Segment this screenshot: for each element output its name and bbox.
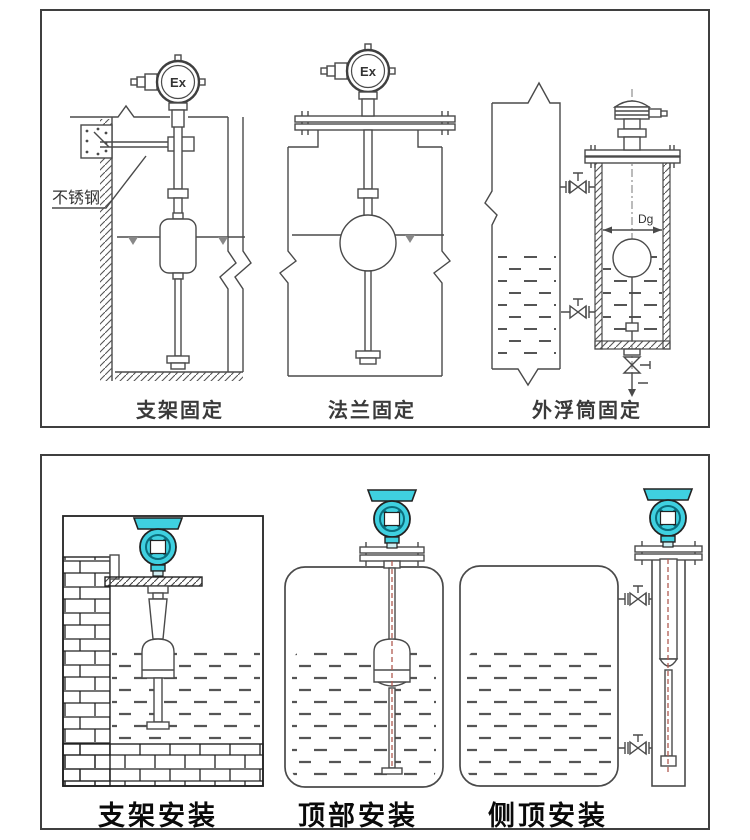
diagram-flange-fixing: Ex	[280, 44, 455, 376]
mounting-flange	[295, 111, 455, 135]
upper-valve-icon	[560, 173, 595, 193]
level-marker-icon	[405, 235, 415, 243]
float	[142, 639, 174, 678]
upper-valve-icon	[618, 586, 652, 605]
stainless-steel-label: 不锈钢	[52, 189, 100, 207]
lower-valve-icon	[561, 299, 595, 318]
brick-wall	[63, 557, 110, 786]
drain-valve-icon	[624, 349, 650, 397]
ex-transmitter-head-icon: Ex	[321, 44, 395, 116]
teal-transmitter-head-icon	[368, 490, 416, 548]
ex-marking-label: Ex	[170, 75, 187, 90]
pipe-coupling	[168, 189, 188, 198]
rod-end-stop	[167, 356, 189, 363]
rod-end-stop	[147, 722, 169, 729]
caption-external-chamber-fixing: 外浮筒固定	[512, 394, 662, 423]
caption-top-installation: 顶部安装	[280, 794, 436, 833]
caption-side-top-installation: 侧顶安装	[470, 794, 626, 833]
transmitter-head-icon	[615, 101, 667, 150]
cable-gland-icon	[649, 109, 661, 117]
pipe-coupling	[358, 189, 378, 198]
guide-pipe	[174, 124, 182, 189]
floor-hatch	[115, 372, 243, 381]
tank-liquid	[112, 646, 260, 744]
sphere-float	[340, 215, 396, 271]
stainless-steel-callout: 不锈钢	[52, 156, 146, 208]
guide-pipe	[364, 130, 372, 189]
installation-methods-panel: 支架安装 顶部安装 侧顶安装	[40, 454, 710, 830]
float	[160, 219, 196, 273]
pipe-coupling	[148, 586, 168, 593]
ex-transmitter-head-icon: Ex	[131, 55, 205, 127]
tank-liquid	[498, 251, 556, 361]
installation-methods-drawing	[42, 456, 708, 828]
teal-transmitter-head-icon	[644, 489, 692, 547]
diagram-top-installation	[285, 490, 443, 787]
sphere-float	[613, 239, 651, 277]
fixing-methods-panel: Ex 不锈钢	[40, 9, 710, 428]
caption-bracket-fixing: 支架固定	[110, 394, 250, 423]
caption-flange-fixing: 法兰固定	[302, 394, 442, 423]
tank-liquid	[467, 650, 611, 780]
diagram-external-chamber-fixing: Dg	[485, 83, 680, 397]
level-marker-icon	[128, 237, 138, 245]
fixing-methods-drawing: Ex 不锈钢	[42, 11, 708, 426]
rod-end-stop	[356, 351, 380, 358]
ex-marking-label: Ex	[360, 64, 377, 79]
wall-angle-bracket	[110, 555, 119, 579]
lower-valve-icon	[618, 735, 652, 754]
bracket-shelf	[105, 577, 202, 586]
diagram-side-top-installation	[460, 489, 702, 786]
level-marker-icon	[218, 237, 228, 245]
guide-tube	[149, 599, 167, 639]
tank-liquid	[292, 651, 436, 781]
diagram-bracket-fixing: Ex 不锈钢	[52, 55, 251, 381]
figure-stage: Ex 不锈钢	[0, 0, 750, 840]
diagram-bracket-installation	[63, 516, 263, 786]
dg-label: Dg	[638, 212, 653, 226]
caption-bracket-installation: 支架安装	[80, 794, 236, 833]
rod-end-stop	[382, 768, 402, 774]
